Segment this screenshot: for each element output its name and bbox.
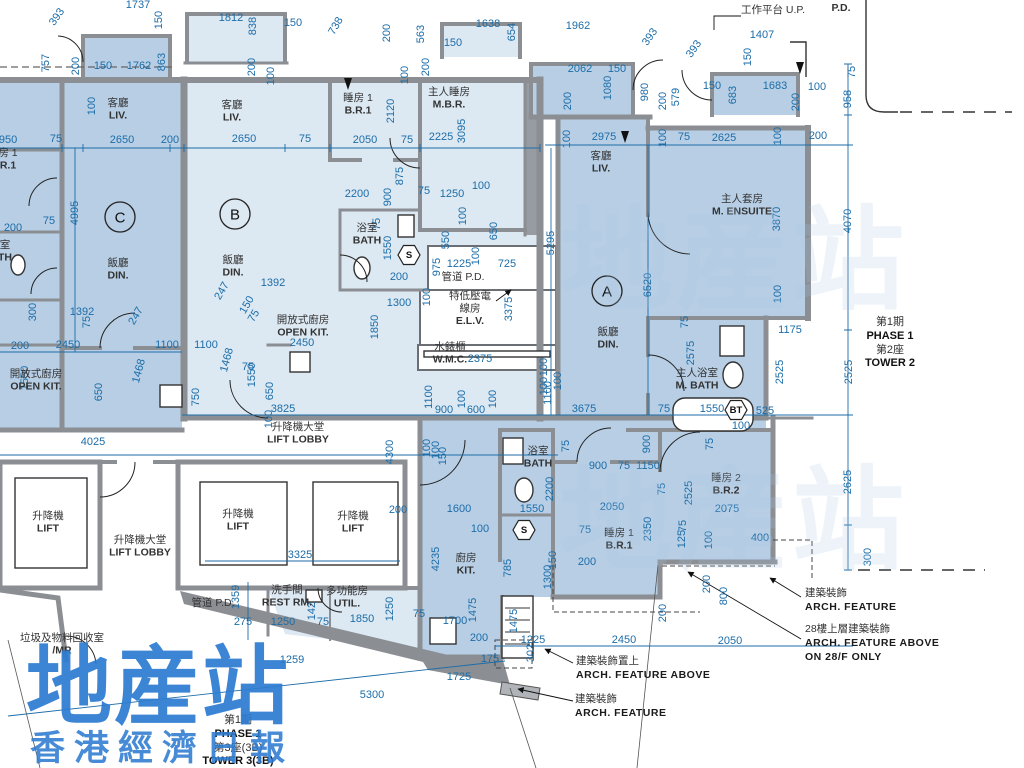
dim-label: 1100 — [194, 339, 218, 351]
room-label: 飯廳 — [108, 256, 129, 269]
room-label: 睡房 1 — [343, 91, 373, 104]
room-label: REST RM. — [262, 597, 312, 609]
dim-label: 579 — [670, 88, 682, 106]
dim-label: 4070 — [842, 209, 854, 233]
room-label: 室 — [0, 238, 10, 251]
dim-label: 4235 — [430, 547, 442, 571]
dim-label: 100 — [399, 66, 411, 84]
dim-label: 1225 — [447, 258, 471, 270]
dim-label: 900 — [641, 435, 653, 453]
dim-label: 3870 — [771, 207, 783, 231]
room-label: 客廳 — [591, 149, 612, 162]
dim-label: 900 — [382, 188, 394, 206]
dim-label: 100 — [772, 127, 784, 145]
dim-label: 75 — [656, 483, 668, 495]
phase-en: PHASE 1 — [845, 330, 935, 344]
arch-feature-note: 建築裝飾置上ARCH. FEATURE ABOVE — [576, 655, 710, 683]
dim-label: 958 — [842, 90, 854, 108]
dim-label: 100 — [471, 523, 489, 535]
arch-feature-note-line: 28樓上層建築裝飾 — [805, 623, 939, 637]
room-label: 水錶櫃 — [434, 340, 466, 353]
dim-label: 200 — [420, 58, 432, 76]
dim-label: 100 — [470, 247, 482, 265]
dim-label: 2225 — [429, 131, 453, 143]
dim-label: 1762 — [127, 60, 151, 72]
room-label: B.R.1 — [345, 105, 372, 117]
dim-label: 1100 — [423, 385, 435, 409]
dim-label: 1638 — [476, 18, 500, 30]
room-label: 飯廳 — [598, 325, 619, 338]
dim-label: 3325 — [288, 549, 312, 561]
dim-label: 200 — [70, 57, 82, 75]
dim-label: 200 — [161, 134, 179, 146]
dim-label: 1550 — [700, 403, 724, 415]
dim-label: 6520 — [642, 273, 654, 297]
dim-label: 200 — [701, 575, 713, 593]
watermark-subtitle: 香港經濟日報 — [30, 720, 294, 768]
dim-label: 1812 — [219, 12, 243, 24]
dim-label: 900 — [435, 404, 453, 416]
room-label: R.1 — [0, 160, 16, 172]
dim-label: 650 — [488, 222, 500, 240]
dim-label: 654 — [506, 23, 518, 41]
room-label: LIFT — [342, 523, 365, 535]
arch-feature-note-line: ARCH. FEATURE ABOVE — [576, 669, 710, 683]
room-label: 浴室 — [528, 444, 549, 457]
dim-label: 738 — [326, 15, 346, 37]
room-label: 開放式廚房 — [277, 313, 330, 326]
dim-label: 838 — [247, 17, 259, 35]
dim-label: 980 — [639, 83, 651, 101]
dim-label: 725 — [498, 258, 516, 270]
room-label: LIFT LOBBY — [267, 434, 329, 446]
dim-label: 600 — [467, 404, 485, 416]
tower-en: TOWER 2 — [845, 357, 935, 371]
dim-label: 2050 — [353, 134, 377, 146]
dim-label: 200 — [11, 340, 29, 352]
hex-symbol-label: BT — [730, 405, 743, 416]
dim-label: 2450 — [290, 337, 314, 349]
dim-label: 150 — [94, 60, 112, 72]
dim-label: 3095 — [456, 119, 468, 143]
dim-label: 100 — [732, 420, 750, 432]
arch-feature-note-line: ARCH. FEATURE ABOVE — [805, 637, 939, 651]
room-label: 主人套房 — [721, 192, 763, 205]
dim-label: 75 — [81, 316, 93, 328]
dim-label: 1850 — [369, 315, 381, 339]
room-label: 開放式廚房 — [10, 367, 63, 380]
dim-label: 75 — [679, 316, 691, 328]
room-label: P.D. — [831, 2, 850, 14]
dim-label: 1737 — [126, 0, 150, 11]
room-label: B.R.2 — [713, 485, 740, 497]
abath-sink — [503, 438, 523, 464]
dim-label: 300 — [862, 548, 874, 566]
dim-label: 2375 — [468, 353, 492, 365]
dim-label: 5300 — [360, 689, 384, 701]
tower-zh: 第2座 — [845, 344, 935, 358]
dim-label: 1475 — [508, 609, 520, 633]
dim-label: 2650 — [232, 133, 256, 145]
dim-label: 1150 — [636, 460, 660, 472]
dim-label: 75 — [50, 133, 62, 145]
room-label: 主人浴室 — [676, 366, 718, 379]
room-label: LIV. — [223, 112, 241, 124]
room-label: DIN. — [108, 270, 129, 282]
room-label: 線房 — [460, 302, 481, 315]
dim-label: 650 — [264, 382, 276, 400]
dim-label: 785 — [502, 559, 514, 577]
room-label: KIT. — [457, 565, 476, 577]
dim-label: 2200 — [345, 188, 369, 200]
room-label: 廚房 — [456, 551, 477, 564]
arch-feature-note: 28樓上層建築裝飾ARCH. FEATURE ABOVEON 28/F ONLY — [805, 623, 939, 665]
dim-label: 100 — [487, 390, 499, 408]
phase-zh: 第1期 — [845, 316, 935, 330]
room-label: UTIL. — [334, 598, 360, 610]
room-label: E.L.V. — [456, 315, 484, 327]
dim-label: 650 — [93, 383, 105, 401]
dim-label: 2450 — [612, 634, 636, 646]
arch-feature-note-line: ON 28/F ONLY — [805, 651, 939, 665]
dim-label: 800 — [718, 587, 730, 605]
dim-label: 393 — [684, 38, 704, 60]
mbath-sink — [720, 326, 744, 356]
arch-feature-note-line: 建築裝飾 — [805, 587, 896, 601]
room-label: M.B.R. — [433, 99, 466, 111]
dim-label: 100 — [538, 358, 550, 376]
dim-label: 2625 — [712, 132, 736, 144]
dim-label: 2625 — [842, 470, 854, 494]
dim-label: 100 — [86, 97, 98, 115]
kitchen-sink-left — [160, 385, 182, 407]
dim-label: 150 — [437, 447, 449, 465]
room-label: 工作平台 U.P. — [741, 3, 805, 16]
dim-label: 1392 — [261, 277, 285, 289]
room-label: 管道 P.D. — [442, 270, 485, 283]
dim-label: 757 — [40, 54, 52, 72]
dim-label: 75 — [846, 66, 858, 78]
dim-label: 200 — [657, 92, 669, 110]
kitchen-sink-b — [290, 352, 310, 372]
dim-label: 750 — [190, 388, 202, 406]
arch-feature-note-line: ARCH. FEATURE — [575, 707, 666, 721]
arch-feature-note: 建築裝飾ARCH. FEATURE — [805, 587, 896, 615]
room-label: 睡房 1 — [604, 526, 634, 539]
room-label: BATH — [524, 458, 552, 470]
dim-label: 100 — [472, 180, 490, 192]
dim-label: 2450 — [56, 339, 80, 351]
dim-label: 75 — [579, 524, 591, 536]
abath-toilet — [515, 478, 533, 502]
dim-label: 100 — [703, 531, 715, 549]
room-label: 升降機大堂 — [272, 420, 325, 433]
room-label: B.R.1 — [606, 540, 633, 552]
dim-label: 950 — [0, 134, 17, 146]
dim-label: 1100 — [155, 339, 179, 351]
dim-label: 2200 — [544, 477, 556, 501]
room-label: LIFT — [37, 523, 60, 535]
room-label: 洗手間 — [271, 583, 303, 596]
hex-symbol-label: S — [521, 525, 527, 536]
dim-label: 1700 — [443, 615, 467, 627]
dim-label: 2075 — [715, 503, 739, 515]
dim-label: 100 — [552, 372, 564, 390]
dim-label: 200 — [246, 58, 258, 76]
dim-label: 75 — [658, 403, 670, 415]
dim-label: 200 — [657, 604, 669, 622]
room-label: DIN. — [223, 267, 244, 279]
dim-label: 5295 — [545, 231, 557, 255]
dim-label: 393 — [47, 6, 67, 28]
dim-label: 1250 — [384, 597, 396, 621]
dim-label: 100 — [561, 130, 573, 148]
dim-label: 75 — [43, 215, 55, 227]
dim-label: 525 — [756, 405, 774, 417]
room-label: 睡房 2 — [711, 471, 741, 484]
room-label: TH — [0, 252, 12, 264]
dim-label: 4300 — [384, 440, 396, 464]
dim-label: 2350 — [642, 517, 654, 541]
room-label: 升降機 — [32, 509, 64, 522]
room-label: 特低壓電 — [449, 289, 491, 302]
dim-label: 150 — [153, 11, 165, 29]
dim-label: 4025 — [81, 436, 105, 448]
dim-label: 550 — [440, 231, 452, 249]
room-label: 客廳 — [222, 98, 243, 111]
dim-label: 1850 — [350, 613, 374, 625]
dim-label: 75 — [678, 131, 690, 143]
dim-label: 1600 — [447, 503, 471, 515]
room-label: LIV. — [109, 110, 127, 122]
room-label: 升降機 — [222, 507, 254, 520]
dim-label: 200 — [381, 24, 393, 42]
room-label: 房 1 — [0, 146, 18, 159]
dim-label: 2120 — [385, 99, 397, 123]
dim-label: 125 — [676, 530, 688, 548]
dim-label: 75 — [560, 440, 572, 452]
dim-label: 150 — [608, 63, 626, 75]
dim-label: 200 — [389, 504, 407, 516]
dim-label: 75 — [317, 616, 329, 628]
dim-label: 200 — [4, 222, 22, 234]
dim-label: 200 — [470, 632, 488, 644]
unit-letter: B — [230, 207, 240, 224]
dim-label: 1175 — [778, 324, 802, 336]
room-label: M. ENSUITE — [712, 206, 772, 218]
dim-label: 300 — [27, 303, 39, 321]
dim-label: 900 — [589, 460, 607, 472]
dim-label: 3675 — [572, 403, 596, 415]
dim-label: 875 — [394, 167, 406, 185]
room-label: 主人睡房 — [428, 85, 470, 98]
dim-label: 2050 — [600, 501, 624, 513]
dim-label: 75 — [299, 133, 311, 145]
bbath-sink — [398, 215, 414, 237]
arch-feature-note-line: ARCH. FEATURE — [805, 601, 896, 615]
room-label: 升降機大堂 — [114, 533, 167, 546]
arch-feature-note: 建築裝飾ARCH. FEATURE — [575, 693, 666, 721]
dim-label: 175 — [481, 653, 499, 665]
dim-label: 2525 — [683, 481, 695, 505]
floorplan-page: 3931737757200150176286315018128381507382… — [0, 0, 1024, 768]
dim-label: 100 — [772, 285, 784, 303]
room-label: LIFT — [227, 521, 250, 533]
dim-label: 100 — [457, 207, 469, 225]
room-label: 飯廳 — [223, 253, 244, 266]
room-label: OPEN KIT. — [277, 327, 328, 339]
dim-label: 75 — [413, 608, 425, 620]
dim-label: 75 — [618, 460, 630, 472]
dim-label: 150 — [742, 48, 754, 66]
dim-label: 563 — [415, 25, 427, 43]
dim-label: 393 — [640, 26, 660, 48]
dim-label: 683 — [727, 86, 739, 104]
dim-label: 1407 — [750, 29, 774, 41]
dim-label: 2575 — [685, 341, 697, 365]
arch-feature-note-line: 建築裝飾 — [575, 693, 666, 707]
room-label: 多功能房 — [326, 584, 368, 597]
unit-c-fill — [62, 80, 182, 430]
dim-label: 75 — [418, 185, 430, 197]
leftbath-toilet — [11, 255, 25, 275]
room-label: LIFT LOBBY — [109, 547, 171, 559]
dim-label: 863 — [156, 53, 168, 71]
dim-label: 1550 — [520, 503, 544, 515]
dim-label: 1550 — [382, 236, 394, 260]
room-label: 浴室 — [357, 221, 378, 234]
dim-label: 2650 — [110, 134, 134, 146]
dim-label: 1300 — [542, 565, 554, 589]
room-label: BATH — [353, 235, 381, 247]
dim-label: 3375 — [503, 297, 515, 321]
dim-label: 100 — [265, 67, 277, 85]
dim-label: 1962 — [566, 20, 590, 32]
arch-feature-bar — [500, 682, 540, 700]
dim-label: 200 — [562, 92, 574, 110]
dim-label: 1300 — [387, 297, 411, 309]
dim-label: 2062 — [568, 63, 592, 75]
dim-label: 100 — [808, 81, 826, 93]
dim-label: 100 — [421, 288, 433, 306]
dim-label: 200 — [390, 271, 408, 283]
dim-label: 3825 — [271, 403, 295, 415]
arch-feature-note-line: 建築裝飾置上 — [576, 655, 710, 669]
mbath-toilet — [723, 362, 743, 388]
room-label: 升降機 — [337, 509, 369, 522]
dim-label: 150 — [703, 80, 721, 92]
dim-label: 2050 — [718, 635, 742, 647]
dim-label: 1725 — [447, 671, 471, 683]
dim-label: 75 — [242, 361, 254, 373]
dim-label: 1080 — [602, 76, 614, 100]
dim-label: 1475 — [467, 598, 479, 622]
dim-label: 150 — [284, 17, 302, 29]
dim-label: 2525 — [774, 360, 786, 384]
room-label: 客廳 — [108, 96, 129, 109]
room-label: 管道 P.D. — [192, 596, 235, 609]
dim-label: 4995 — [69, 201, 81, 225]
dim-label: 200 — [790, 93, 802, 111]
room-label: W.M.C. — [433, 354, 467, 366]
dim-label: 100 — [657, 129, 669, 147]
dim-label: 1683 — [763, 80, 787, 92]
dim-label: 302 — [525, 644, 537, 662]
room-label: OPEN KIT. — [10, 381, 61, 393]
dim-label: 2975 — [592, 131, 616, 143]
dim-label: 200 — [578, 556, 596, 568]
dim-label: 75 — [401, 134, 413, 146]
dim-label: 150 — [444, 37, 462, 49]
unit-letter: C — [115, 210, 126, 227]
unit-letter: A — [602, 284, 612, 301]
room-label: M. BATH — [676, 380, 719, 392]
room-label: LIV. — [592, 163, 610, 175]
hex-symbol-label: S — [406, 250, 412, 261]
phase-tower-label-right: 第1期 PHASE 1 第2座 TOWER 2 — [845, 316, 935, 371]
room-label: DIN. — [598, 339, 619, 351]
dim-label: 200 — [809, 130, 827, 142]
dim-label: 400 — [751, 532, 769, 544]
dim-label: 1250 — [440, 188, 464, 200]
dim-label: 75 — [704, 438, 716, 450]
